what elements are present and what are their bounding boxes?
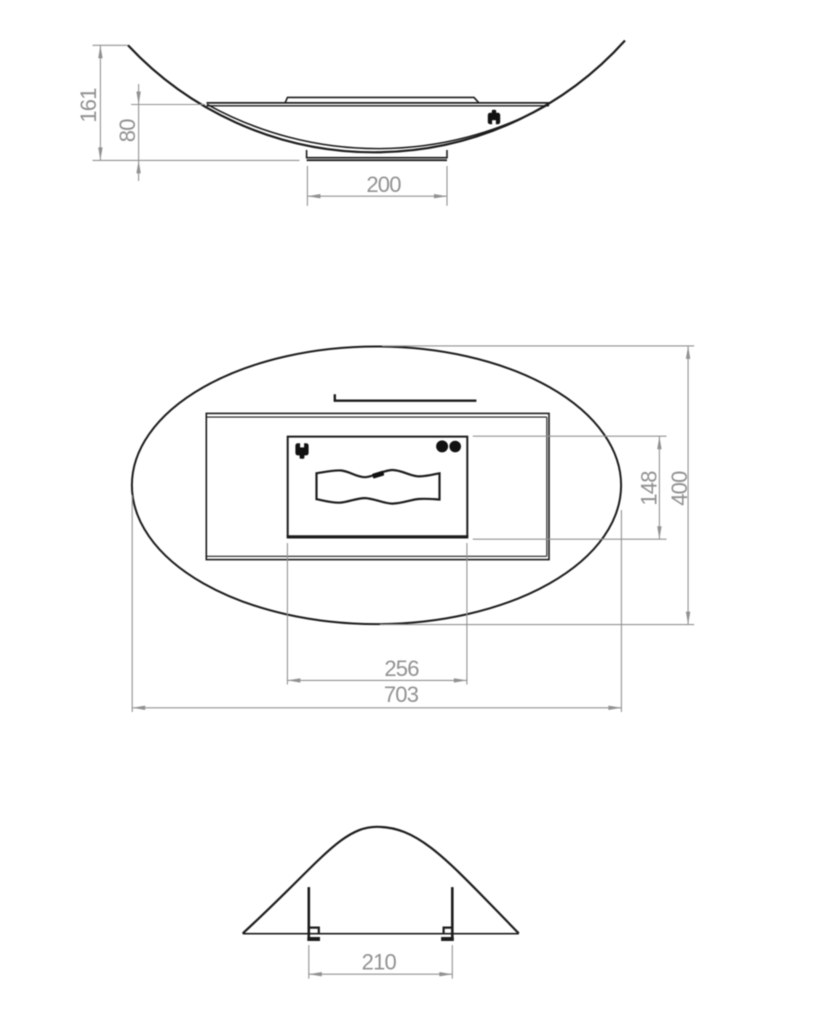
svg-text:400: 400 bbox=[667, 471, 692, 506]
svg-text:80: 80 bbox=[115, 119, 140, 142]
svg-text:161: 161 bbox=[76, 88, 101, 123]
svg-text:703: 703 bbox=[384, 682, 419, 707]
svg-text:200: 200 bbox=[366, 172, 401, 197]
svg-text:256: 256 bbox=[384, 656, 419, 681]
svg-text:210: 210 bbox=[362, 950, 397, 975]
svg-text:148: 148 bbox=[637, 471, 662, 506]
